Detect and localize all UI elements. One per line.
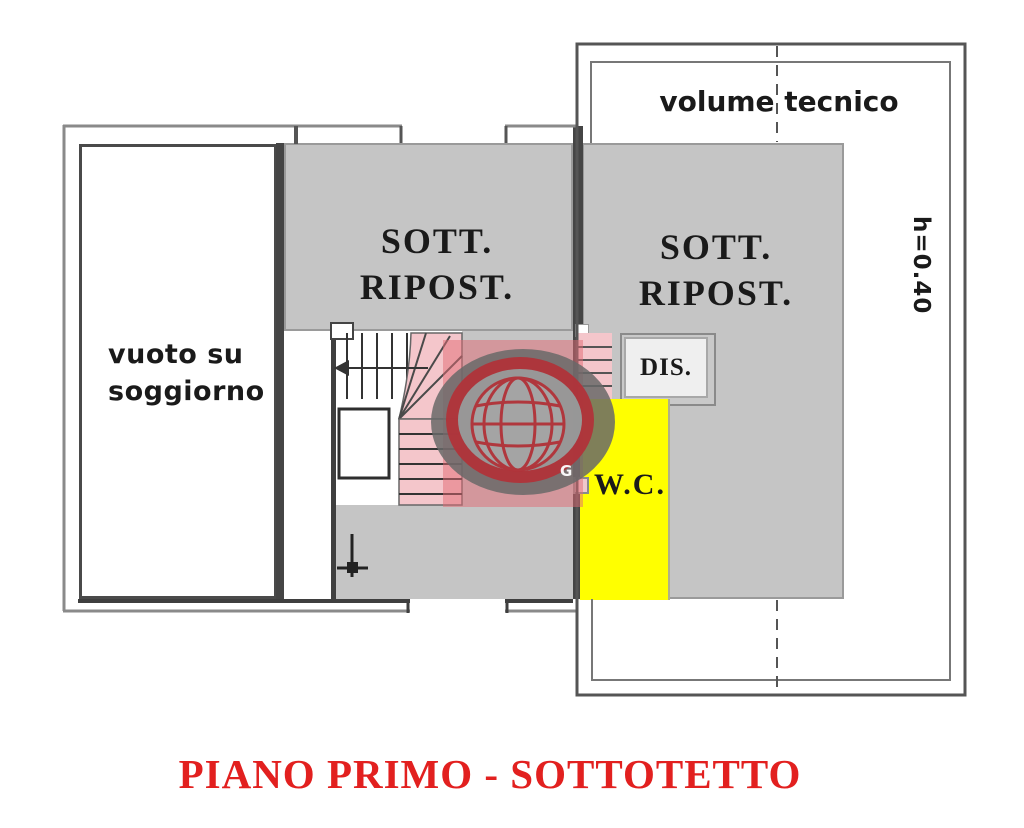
label-volume-tecnico: volume tecnico (649, 85, 909, 118)
label-dis: DIS. (640, 354, 692, 382)
label-sott-ripost-right: SOTT. RIPOST. (591, 224, 841, 316)
watermark-letter: G (560, 462, 572, 480)
label-vuoto-su-soggiorno: vuoto su soggiorno (108, 336, 265, 410)
label-wc: W.C. (584, 468, 676, 502)
label-height-annotation: h=0.40 (908, 216, 934, 308)
room-dis: DIS. (624, 337, 708, 398)
plan-linework (0, 0, 1024, 828)
floor-plan-canvas: SOTT. RIPOST. SOTT. RIPOST. vuoto su sog… (0, 0, 1024, 828)
label-sott-ripost-left: SOTT. RIPOST. (312, 218, 562, 310)
page-title: PIANO PRIMO - SOTTOTETTO (0, 750, 980, 798)
globe-icon (472, 378, 564, 470)
stair-landing (339, 409, 389, 478)
stair-direction-arrow (334, 360, 349, 376)
duct-detail (337, 534, 368, 577)
